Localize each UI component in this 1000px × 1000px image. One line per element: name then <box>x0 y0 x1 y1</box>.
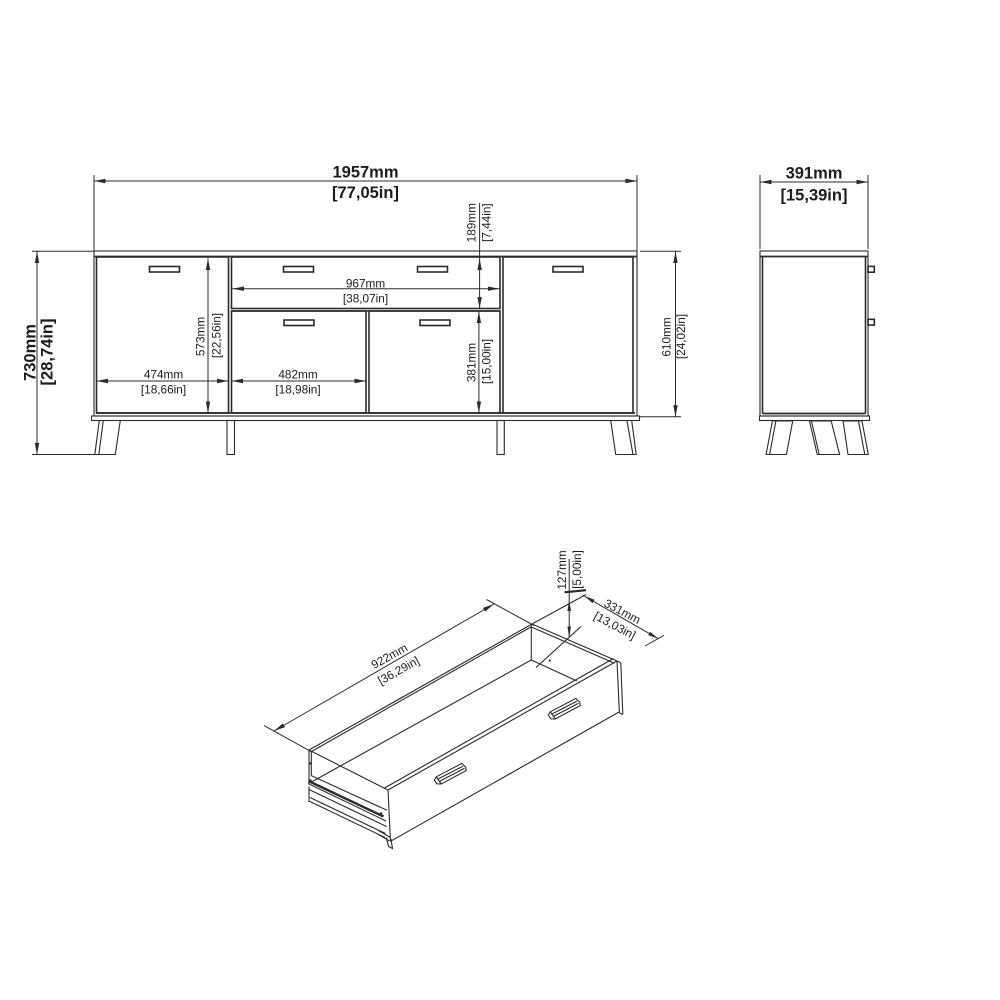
svg-text:[7,44in]: [7,44in] <box>479 203 493 242</box>
svg-text:967mm: 967mm <box>346 276 386 290</box>
svg-text:[18,66in]: [18,66in] <box>141 383 186 397</box>
svg-text:127mm: 127mm <box>555 550 569 590</box>
svg-text:[15,00in]: [15,00in] <box>479 339 493 384</box>
svg-text:482mm: 482mm <box>278 367 318 381</box>
svg-text:189mm: 189mm <box>464 203 478 243</box>
svg-text:[38,07in]: [38,07in] <box>343 292 388 306</box>
svg-text:610mm: 610mm <box>660 317 674 357</box>
svg-text:391mm: 391mm <box>786 165 843 183</box>
svg-text:573mm: 573mm <box>193 317 207 357</box>
svg-text:[15,39in]: [15,39in] <box>781 187 848 205</box>
svg-text:474mm: 474mm <box>144 367 184 381</box>
svg-text:[24,02in]: [24,02in] <box>674 314 688 359</box>
svg-text:[5,00in]: [5,00in] <box>570 550 584 589</box>
svg-text:[77,05in]: [77,05in] <box>332 184 399 202</box>
svg-text:730mm: 730mm <box>22 324 40 381</box>
svg-text:1957mm: 1957mm <box>332 164 398 182</box>
svg-text:381mm: 381mm <box>465 343 479 383</box>
svg-text:[22,56in]: [22,56in] <box>209 313 223 358</box>
svg-text:[18,98in]: [18,98in] <box>275 383 320 397</box>
svg-text:[28,74in]: [28,74in] <box>39 319 57 386</box>
